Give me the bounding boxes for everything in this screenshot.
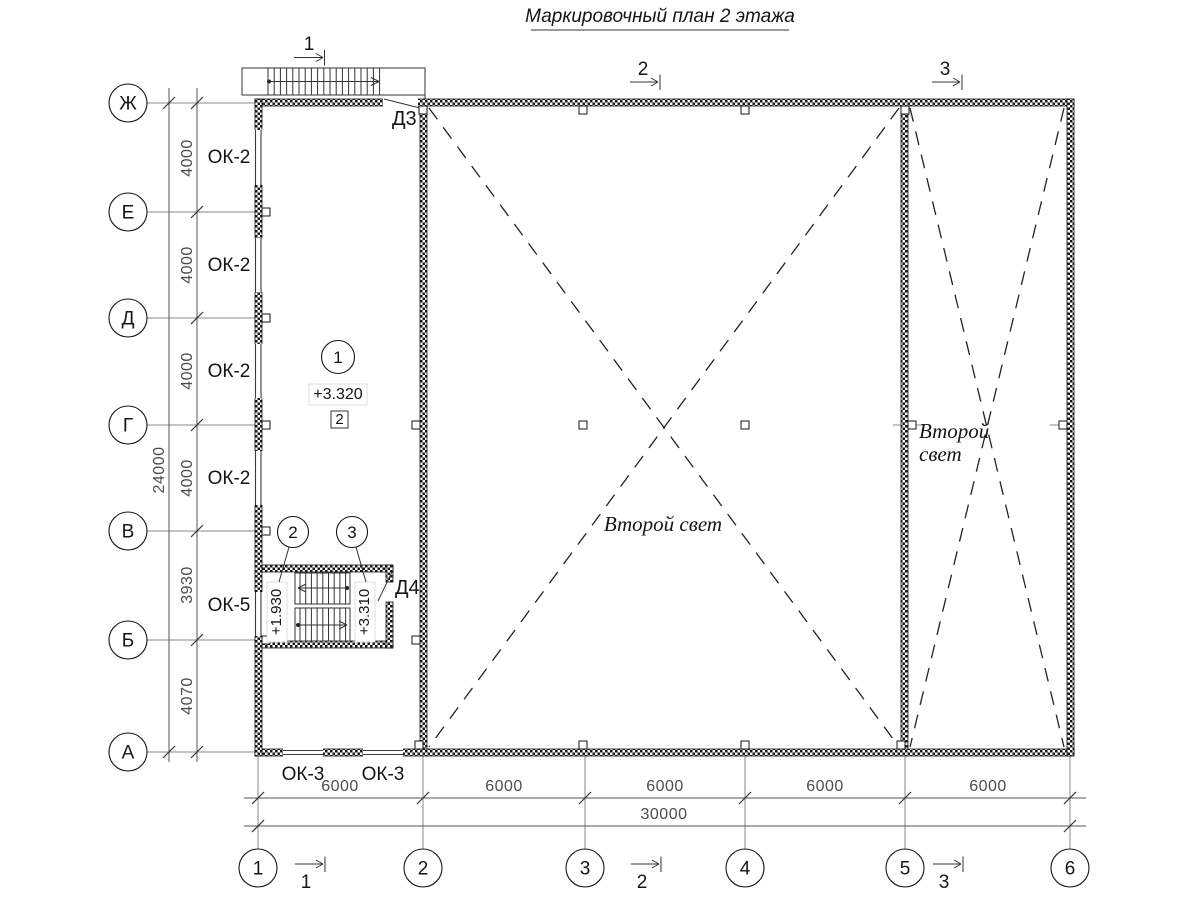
col-axis-label: 5 bbox=[900, 859, 911, 880]
dim-value: 4000 bbox=[179, 139, 196, 177]
element-tags: 1 2 2 3 bbox=[278, 341, 368, 583]
dim-value: 3930 bbox=[179, 566, 196, 604]
section-mark: 3 bbox=[940, 59, 951, 80]
drawing-title: Маркировочный план 2 этажа bbox=[525, 6, 795, 27]
left-dimension-values: 4000 4000 4000 4000 3930 4070 24000 bbox=[151, 139, 196, 715]
wall-axis2 bbox=[420, 106, 427, 749]
door-label-d4: Д4 bbox=[395, 577, 420, 599]
window-labels: ОК-2 ОК-2 ОК-2 ОК-2 ОК-5 ОК-3 ОК-3 Д3 Д4 bbox=[208, 108, 420, 785]
section-mark: 1 bbox=[304, 34, 315, 55]
dim-value: 4070 bbox=[179, 677, 196, 715]
doors bbox=[378, 98, 420, 601]
col-axis-label: 6 bbox=[1065, 859, 1076, 880]
dim-value: 4000 bbox=[179, 246, 196, 284]
windows bbox=[254, 130, 404, 757]
stair-tag: 3 bbox=[347, 523, 356, 542]
wall-right bbox=[1067, 99, 1074, 756]
wall-top bbox=[255, 99, 1074, 106]
dim-value: 6000 bbox=[969, 778, 1007, 795]
dim-value: 6000 bbox=[485, 778, 523, 795]
dim-value: 6000 bbox=[321, 778, 359, 795]
door-label-d3: Д3 bbox=[392, 108, 417, 130]
col-axis-bubbles: 1 2 3 4 5 6 bbox=[239, 849, 1089, 887]
level-stair-landing: +1.930 bbox=[268, 589, 285, 635]
dim-value: 6000 bbox=[806, 778, 844, 795]
window-label: ОК-5 bbox=[208, 595, 251, 616]
col-axis-label: 1 bbox=[253, 859, 264, 880]
window-label: ОК-3 bbox=[282, 764, 325, 785]
drawing-sheet: Маркировочный план 2 этажа bbox=[0, 0, 1200, 900]
section-mark: 2 bbox=[637, 872, 648, 893]
dim-value: 6000 bbox=[646, 778, 684, 795]
wall-left bbox=[255, 99, 262, 756]
bottom-dimension-values: 6000 6000 6000 6000 6000 30000 bbox=[321, 778, 1007, 823]
window-label: ОК-2 bbox=[208, 361, 251, 382]
row-axis-label: Г bbox=[123, 416, 133, 437]
row-axis-label: В bbox=[122, 522, 135, 543]
section-mark: 1 bbox=[301, 872, 312, 893]
window-label: ОК-2 bbox=[208, 255, 251, 276]
window-label: ОК-2 bbox=[208, 468, 251, 489]
section-mark: 2 bbox=[638, 59, 649, 80]
second-light-main: Второй свет bbox=[604, 512, 722, 536]
stairwell-wall-right-lower bbox=[386, 602, 393, 648]
dim-total: 30000 bbox=[641, 806, 688, 823]
col-axis-label: 4 bbox=[740, 859, 751, 880]
dim-value: 4000 bbox=[179, 459, 196, 497]
level-marks: +3.320 +1.930 +3.310 bbox=[267, 384, 375, 642]
second-light-right-l2: свет bbox=[919, 442, 962, 466]
room-tag: 1 bbox=[333, 348, 342, 367]
room-square-tag: 2 bbox=[335, 411, 343, 428]
row-axis-label: А bbox=[122, 743, 135, 764]
row-axis-label: Е bbox=[122, 203, 135, 224]
stairwell-wall-right-upper bbox=[386, 565, 393, 582]
col-axis-label: 3 bbox=[580, 859, 591, 880]
col-axis-label: 2 bbox=[418, 859, 429, 880]
wall-axis5 bbox=[901, 106, 908, 749]
row-axis-label: Ж bbox=[119, 94, 137, 115]
level-stair-top: +3.310 bbox=[356, 589, 373, 635]
second-light-right-l1: Второй bbox=[919, 419, 990, 443]
row-axis-label: Б bbox=[122, 631, 134, 652]
door-d4-leaf bbox=[378, 572, 392, 601]
door-d3-opening bbox=[383, 98, 418, 107]
dim-total: 24000 bbox=[151, 447, 168, 494]
floor-plan-drawing: Маркировочный план 2 этажа bbox=[0, 0, 1200, 900]
axis-lines bbox=[147, 103, 1072, 849]
row-axis-bubbles: Ж Е Д Г В Б А bbox=[109, 84, 147, 771]
level-floor: +3.320 bbox=[313, 386, 362, 403]
row-axis-label: Д bbox=[122, 309, 135, 330]
section-mark: 3 bbox=[939, 872, 950, 893]
second-light-annotations: Второй свет Второй свет bbox=[604, 419, 990, 536]
window-label: ОК-2 bbox=[208, 147, 251, 168]
window-label: ОК-3 bbox=[362, 764, 405, 785]
dim-value: 4000 bbox=[179, 352, 196, 390]
exterior-stair bbox=[242, 68, 425, 99]
stair-tag: 2 bbox=[288, 523, 297, 542]
